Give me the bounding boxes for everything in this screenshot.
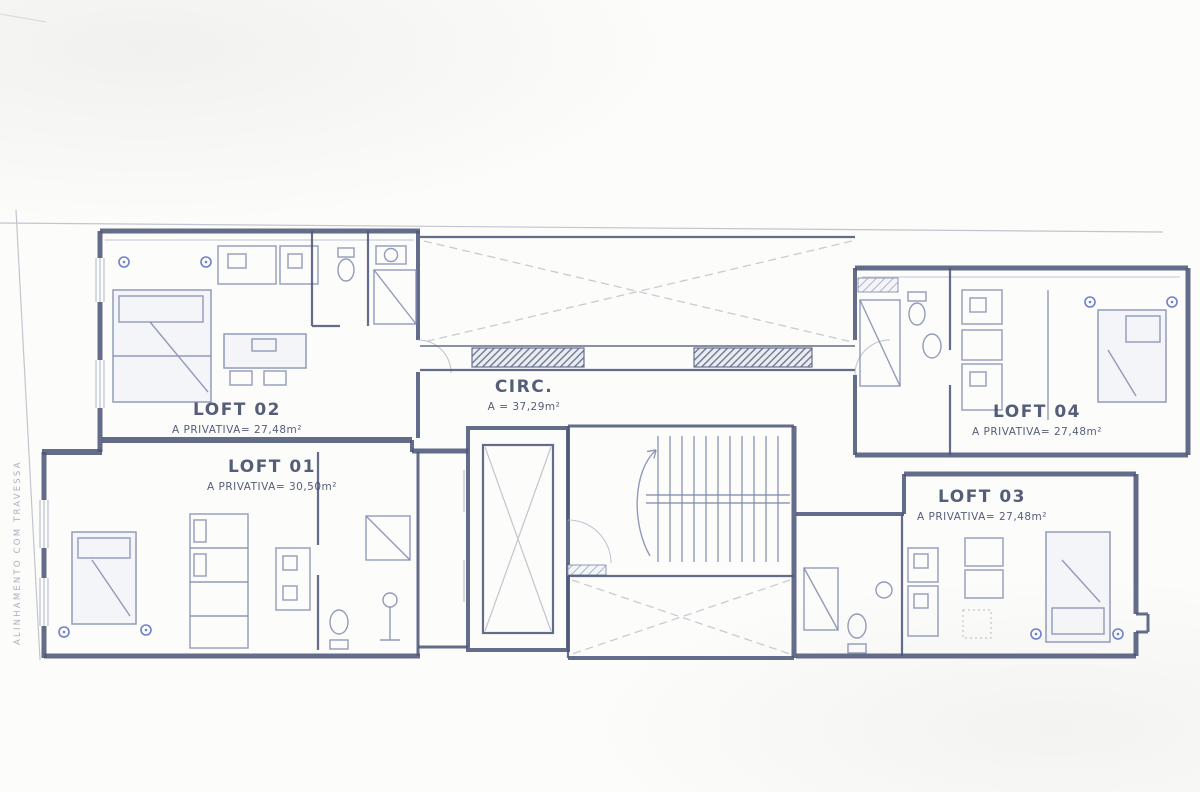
void-cross <box>572 580 790 654</box>
dining-table <box>224 334 306 385</box>
sink <box>876 582 892 598</box>
light-fixture-icon <box>1035 633 1038 636</box>
loft-02-furniture <box>113 231 416 402</box>
toilet <box>909 303 925 325</box>
light-fixture-icon <box>205 261 208 264</box>
unit-loft-01: LOFT 01 A PRIVATIVA= 30,50m² <box>40 451 468 658</box>
appliances <box>965 538 1003 598</box>
light-fixture-icon <box>1171 301 1174 304</box>
bed <box>72 532 136 624</box>
bridge-hatch <box>472 348 584 367</box>
light-fixture-icon <box>145 629 148 632</box>
kitchen-counter <box>908 548 938 636</box>
light-fixture-icon <box>1089 301 1092 304</box>
toilet-tank <box>848 644 866 653</box>
loft-02-label: LOFT 02 <box>193 400 281 420</box>
unit-loft-04: LOFT 04 A PRIVATIVA= 27,48m² <box>855 268 1188 455</box>
loft-02-area: A PRIVATIVA= 27,48m² <box>172 424 302 436</box>
sink <box>385 249 398 262</box>
rug <box>963 610 991 638</box>
loft-01-label: LOFT 01 <box>228 457 316 477</box>
stair-treads <box>658 436 778 562</box>
toilet-tank <box>330 640 348 649</box>
circulation-label: CIRC. <box>495 377 553 397</box>
bed <box>113 290 211 402</box>
chair <box>264 371 286 385</box>
toilet <box>330 610 348 634</box>
sink <box>383 593 397 607</box>
bed <box>1098 310 1166 402</box>
kitchen-counter <box>276 548 310 610</box>
loft-03-area: A PRIVATIVA= 27,48m² <box>917 511 1047 523</box>
window <box>40 500 48 548</box>
lower-void <box>568 576 794 658</box>
void-cross <box>424 241 852 342</box>
loft-03-furniture <box>804 532 1123 653</box>
elevator-shaft <box>464 428 568 650</box>
loft-01-area: A PRIVATIVA= 30,50m² <box>207 481 337 493</box>
toilet-tank <box>908 292 926 301</box>
bridge-hatch <box>694 348 812 367</box>
unit-loft-03: LOFT 03 A PRIVATIVA= 27,48m² <box>796 474 1148 656</box>
scan-artifact-line <box>0 14 46 22</box>
staircase <box>568 426 794 658</box>
bed <box>1046 532 1110 642</box>
toilet <box>848 614 866 638</box>
window <box>96 258 104 302</box>
window <box>40 578 48 626</box>
sink-pedestal <box>380 607 400 640</box>
wardrobe <box>190 514 248 648</box>
loft-04-area: A PRIVATIVA= 27,48m² <box>972 426 1102 438</box>
alignment-label: ALINHAMENTO COM TRAVESSA <box>13 460 23 645</box>
circulation-area: A = 37,29m² <box>488 401 561 413</box>
vent-grille <box>858 278 898 292</box>
landing-step <box>568 565 606 575</box>
toilet <box>338 259 354 281</box>
bathroom <box>804 568 892 653</box>
floor-plan-drawing: ALINHAMENTO COM TRAVESSA <box>0 0 1200 792</box>
circulation-core: CIRC. A = 37,29m² <box>464 377 794 658</box>
light-fixture-icon <box>123 261 126 264</box>
floor-plan-page: ALINHAMENTO COM TRAVESSA <box>0 0 1200 792</box>
loft-04-label: LOFT 04 <box>993 402 1081 422</box>
chair <box>230 371 252 385</box>
window <box>96 360 104 408</box>
upper-void-and-corridor <box>420 237 855 370</box>
bathroom <box>312 231 416 326</box>
light-fixture-icon <box>63 631 66 634</box>
door-swing <box>418 340 451 373</box>
light-fixture-icon <box>1117 633 1120 636</box>
sink <box>923 334 941 358</box>
unit-loft-02: LOFT 02 A PRIVATIVA= 27,48m² <box>96 231 451 452</box>
toilet-tank <box>338 248 354 257</box>
loft-04-furniture <box>858 278 1177 420</box>
loft-03-label: LOFT 03 <box>938 487 1026 507</box>
kitchen-counter <box>218 246 318 284</box>
door-swing <box>568 520 611 563</box>
shaft-cross <box>485 447 551 631</box>
kitchen-counter <box>962 290 1002 410</box>
